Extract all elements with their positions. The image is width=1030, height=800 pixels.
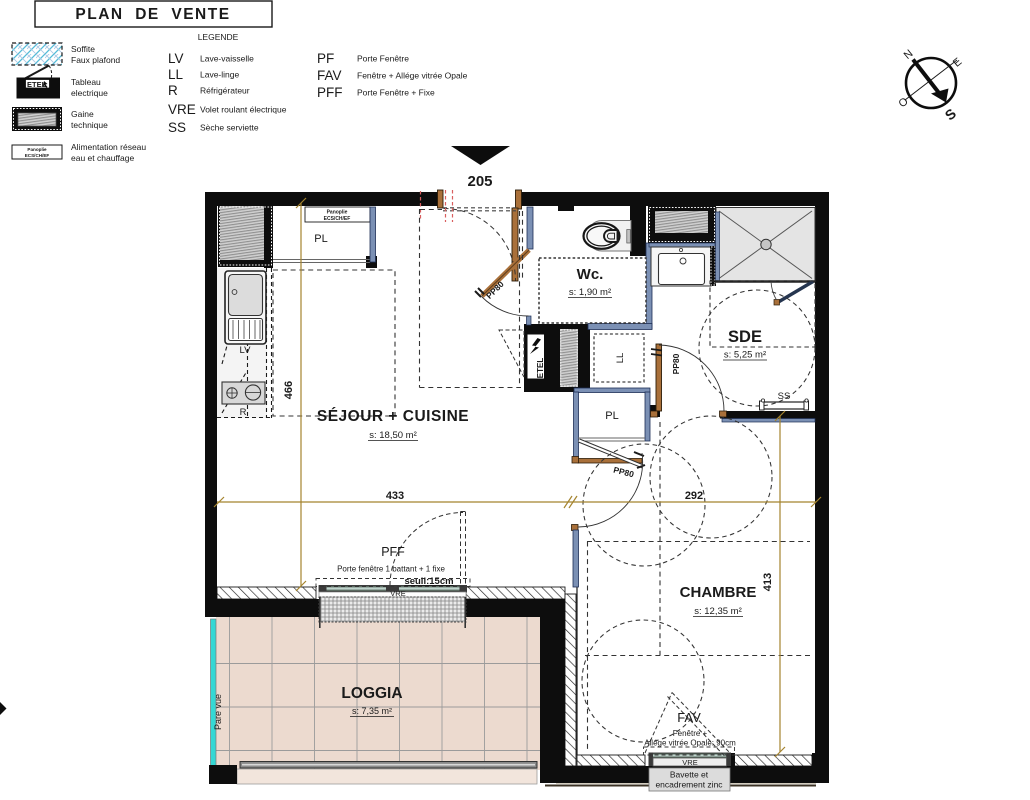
svg-text:PL: PL [314,233,327,245]
svg-text:PF: PF [317,51,334,66]
svg-text:s: 5,25 m²: s: 5,25 m² [724,350,766,361]
svg-text:eau et chauffage: eau et chauffage [71,153,134,163]
svg-text:Panoplie: Panoplie [327,210,348,216]
svg-text:Porte Fenêtre + Fixe: Porte Fenêtre + Fixe [357,88,435,98]
svg-text:CHAMBRE: CHAMBRE [680,584,757,601]
svg-text:encadrement zinc: encadrement zinc [655,780,723,790]
svg-text:205: 205 [467,173,492,190]
svg-text:SÉJOUR + CUISINE: SÉJOUR + CUISINE [317,408,469,425]
svg-text:Bavette et: Bavette et [670,770,709,780]
svg-text:Gaine: Gaine [71,109,94,119]
svg-text:LEGENDE: LEGENDE [198,32,239,42]
svg-text:VRE: VRE [390,589,405,598]
svg-text:electrique: electrique [71,88,108,98]
svg-text:VRE: VRE [682,758,697,767]
svg-text:Réfrigérateur: Réfrigérateur [200,86,250,96]
svg-text:Fenêtre + Allége vitrée Opale: Fenêtre + Allége vitrée Opale [357,71,468,81]
svg-text:ECS/CH/EF: ECS/CH/EF [25,153,50,158]
svg-text:292: 292 [685,490,703,502]
svg-text:Lave-vaisselle: Lave-vaisselle [200,54,254,64]
svg-text:FAV: FAV [677,710,701,725]
svg-text:Soffite: Soffite [71,44,95,54]
svg-text:Pare vue: Pare vue [213,694,223,730]
svg-text:PFF: PFF [317,85,343,100]
svg-text:s: 18,50 m²: s: 18,50 m² [369,430,417,441]
svg-text:R: R [168,83,178,98]
svg-text:s: 1,90 m²: s: 1,90 m² [569,287,611,298]
svg-text:R: R [240,407,247,418]
svg-text:Porte Fenêtre: Porte Fenêtre [357,54,409,64]
svg-text:Volet roulant électrique: Volet roulant électrique [200,105,287,115]
svg-text:Porte fenêtre 1 battant + 1 fi: Porte fenêtre 1 battant + 1 fixe [337,565,445,574]
svg-text:Tableau: Tableau [71,77,101,87]
svg-text:seuil:15cm: seuil:15cm [404,576,453,587]
svg-text:PFF: PFF [381,545,405,559]
svg-text:LOGGIA: LOGGIA [341,685,402,702]
svg-text:Faux plafond: Faux plafond [71,55,120,65]
svg-text:413: 413 [762,573,774,591]
svg-text:LV: LV [240,345,252,356]
svg-text:Wc.: Wc. [577,266,604,283]
svg-text:s: 7,35 m²: s: 7,35 m² [352,706,392,716]
svg-text:FAV: FAV [317,68,342,83]
svg-text:PP80: PP80 [671,353,681,374]
svg-text:Alimentation réseau: Alimentation réseau [71,142,146,152]
svg-text:SDE: SDE [728,328,762,346]
svg-text:s: 12,35 m²: s: 12,35 m² [694,606,742,617]
svg-text:LL: LL [168,67,184,82]
svg-text:433: 433 [386,490,404,502]
svg-text:LV: LV [168,51,184,66]
svg-text:LL: LL [615,353,626,364]
svg-text:ETEL: ETEL [536,358,545,379]
svg-text:Sèche serviette: Sèche serviette [200,123,259,133]
svg-text:Lave-linge: Lave-linge [200,70,239,80]
svg-text:PL: PL [605,410,618,422]
svg-text:PLAN DE VENTE: PLAN DE VENTE [75,6,230,23]
svg-text:technique: technique [71,120,108,130]
svg-text:SS: SS [168,120,186,135]
svg-text:Panoplie: Panoplie [27,147,47,152]
svg-text:VRE: VRE [168,102,196,117]
svg-text:ECS/CH/EF: ECS/CH/EF [324,216,351,222]
svg-text:466: 466 [283,381,295,399]
